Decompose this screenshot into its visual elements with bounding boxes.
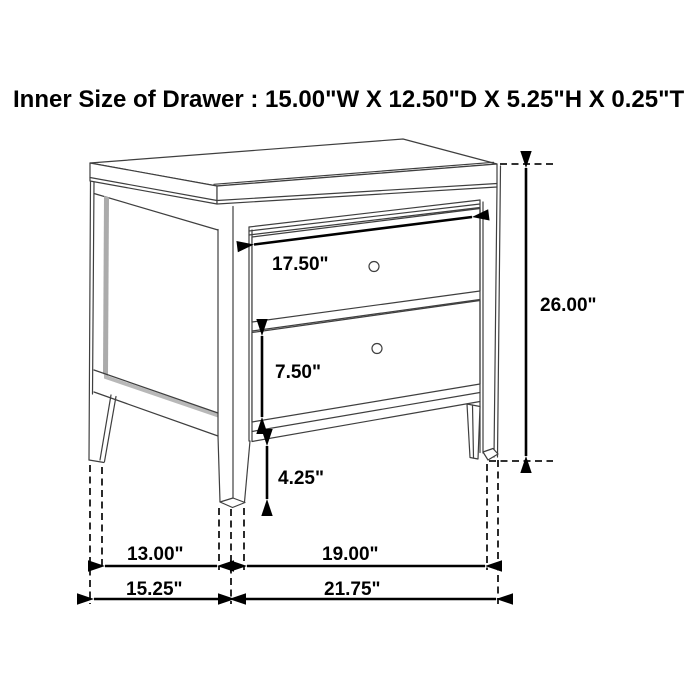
dim-label-side-leg-span: 13.00" xyxy=(127,544,184,565)
tabletop xyxy=(90,139,497,204)
diagram-page: Inner Size of Drawer : 15.00"W X 12.50"D… xyxy=(0,0,700,700)
dim-overall-width: 21.75" xyxy=(235,579,496,600)
panel-shadow-bottom xyxy=(104,375,218,418)
dim-front-leg-span: 19.00" xyxy=(247,544,485,566)
back-right-leg xyxy=(467,404,480,459)
furniture-drawing xyxy=(89,139,501,508)
dim-label-bottom-drawer-height: 7.50" xyxy=(275,362,321,383)
dim-label-overall-depth: 15.25" xyxy=(126,579,183,600)
back-left-leg xyxy=(89,395,116,463)
nightstand-dimension-diagram: 17.50" 26.00" 7.50" 4.25" 13.00" 19.00" xyxy=(0,0,700,700)
dim-label-top-drawer-width: 17.50" xyxy=(272,254,329,275)
top-drawer-knob xyxy=(369,262,379,272)
dim-side-leg-span: 13.00" xyxy=(105,544,217,566)
dim-label-overall-width: 21.75" xyxy=(324,579,381,600)
dim-label-leg-height: 4.25" xyxy=(278,468,324,489)
dim-label-overall-height: 26.00" xyxy=(540,295,597,316)
dim-overall-height: 26.00" xyxy=(526,168,597,456)
side-panel xyxy=(89,181,233,502)
front-right-leg xyxy=(483,449,498,461)
dim-leg-height: 4.25" xyxy=(267,446,324,499)
dim-overall-depth: 15.25" xyxy=(94,579,229,600)
bottom-drawer-knob xyxy=(372,344,382,354)
dim-label-front-leg-span: 19.00" xyxy=(322,544,379,565)
panel-shadow-strip xyxy=(103,196,109,376)
front-face xyxy=(249,166,501,457)
front-left-leg xyxy=(218,436,250,508)
